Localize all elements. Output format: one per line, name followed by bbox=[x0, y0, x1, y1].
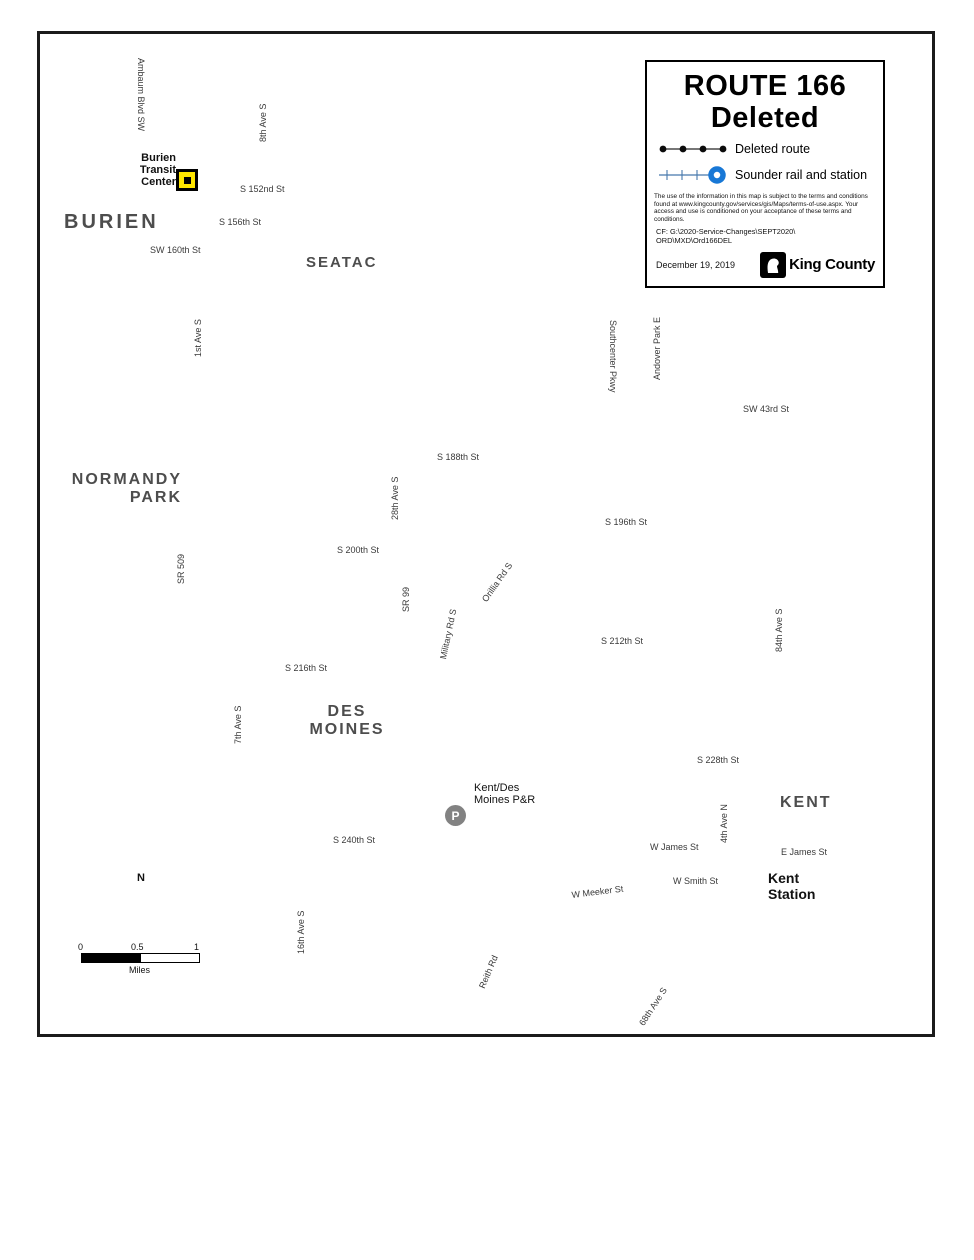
street-label-s152: S 152nd St bbox=[240, 184, 285, 194]
city-label-normandy-park: NORMANDY PARK bbox=[70, 471, 182, 507]
street-label-ambaum: Ambaum Blvd SW bbox=[136, 58, 146, 131]
map-title-line2: Deleted bbox=[647, 102, 883, 134]
king-county-face-icon bbox=[760, 252, 786, 278]
compass-north-label: N bbox=[137, 872, 145, 884]
city-label-des-moines: DES MOINES bbox=[306, 703, 388, 739]
legend-item-sounder: Sounder rail and station bbox=[657, 164, 883, 186]
scale-tick-05: 0.5 bbox=[131, 942, 144, 952]
street-label-wjames: W James St bbox=[650, 842, 699, 852]
street-label-s216: S 216th St bbox=[285, 663, 327, 673]
kent-des-moines-pr-label: Kent/Des Moines P&R bbox=[474, 782, 535, 806]
street-label-s240: S 240th St bbox=[333, 835, 375, 845]
street-label-sw43: SW 43rd St bbox=[743, 404, 789, 414]
street-label-84th-ave: 84th Ave S bbox=[774, 609, 784, 652]
street-label-4th-ave: 4th Ave N bbox=[719, 804, 729, 843]
map-disclaimer: The use of the information in this map i… bbox=[654, 193, 877, 223]
city-label-kent: KENT bbox=[780, 794, 832, 812]
street-label-s212: S 212th St bbox=[601, 636, 643, 646]
street-label-andover: Andover Park E bbox=[652, 317, 662, 380]
street-label-s188: S 188th St bbox=[437, 452, 479, 462]
street-label-sw160: SW 160th St bbox=[150, 245, 201, 255]
deleted-route-swatch-icon bbox=[657, 142, 729, 156]
file-reference: CF: G:\2020-Service-Changes\SEPT2020\ OR… bbox=[656, 228, 877, 245]
street-label-sr99: SR 99 bbox=[401, 587, 411, 612]
street-label-28th-ave: 28th Ave S bbox=[390, 477, 400, 520]
scale-bar-rect bbox=[81, 953, 200, 963]
street-label-8th-ave: 8th Ave S bbox=[258, 104, 268, 142]
scale-bar: 0 0.5 1 Miles bbox=[72, 942, 222, 975]
map-title-line1: ROUTE 166 bbox=[647, 70, 883, 102]
street-label-southcenter: Southcenter Pkwy bbox=[608, 320, 618, 393]
scale-tick-1: 1 bbox=[194, 942, 199, 952]
burien-transit-center-label: Burien Transit Center bbox=[130, 152, 176, 188]
street-label-16th-ave: 16th Ave S bbox=[296, 911, 306, 954]
legend-item-deleted-route: Deleted route bbox=[657, 138, 883, 160]
street-label-s156: S 156th St bbox=[219, 217, 261, 227]
street-label-wsmith: W Smith St bbox=[673, 876, 718, 886]
city-label-burien: BURIEN bbox=[64, 211, 159, 234]
street-label-s200: S 200th St bbox=[337, 545, 379, 555]
map-page: 5 BURIEN SEATAC NORMANDY PARK DES MOINES… bbox=[0, 0, 974, 1260]
scale-tick-0: 0 bbox=[78, 942, 83, 952]
sounder-swatch-icon bbox=[657, 165, 729, 185]
city-label-seatac: SEATAC bbox=[306, 254, 377, 271]
kent-station-label: Kent Station bbox=[768, 870, 815, 902]
street-label-1st-ave: 1st Ave S bbox=[193, 319, 203, 357]
street-label-s228: S 228th St bbox=[697, 755, 739, 765]
map-date: December 19, 2019 bbox=[656, 260, 735, 270]
park-and-ride-icon: P bbox=[445, 805, 466, 826]
burien-transit-center-marker bbox=[176, 169, 198, 191]
scale-unit-label: Miles bbox=[72, 965, 207, 975]
street-label-sr509: SR 509 bbox=[176, 554, 186, 584]
street-label-ejames: E James St bbox=[781, 847, 827, 857]
king-county-logo-text: King County bbox=[789, 256, 875, 273]
street-label-s196: S 196th St bbox=[605, 517, 647, 527]
street-label-7th-ave: 7th Ave S bbox=[233, 706, 243, 744]
title-legend-box: ROUTE 166 Deleted Deleted route Sounder … bbox=[645, 60, 885, 288]
king-county-logo: King County bbox=[760, 252, 875, 278]
transit-center-icon bbox=[184, 177, 191, 184]
